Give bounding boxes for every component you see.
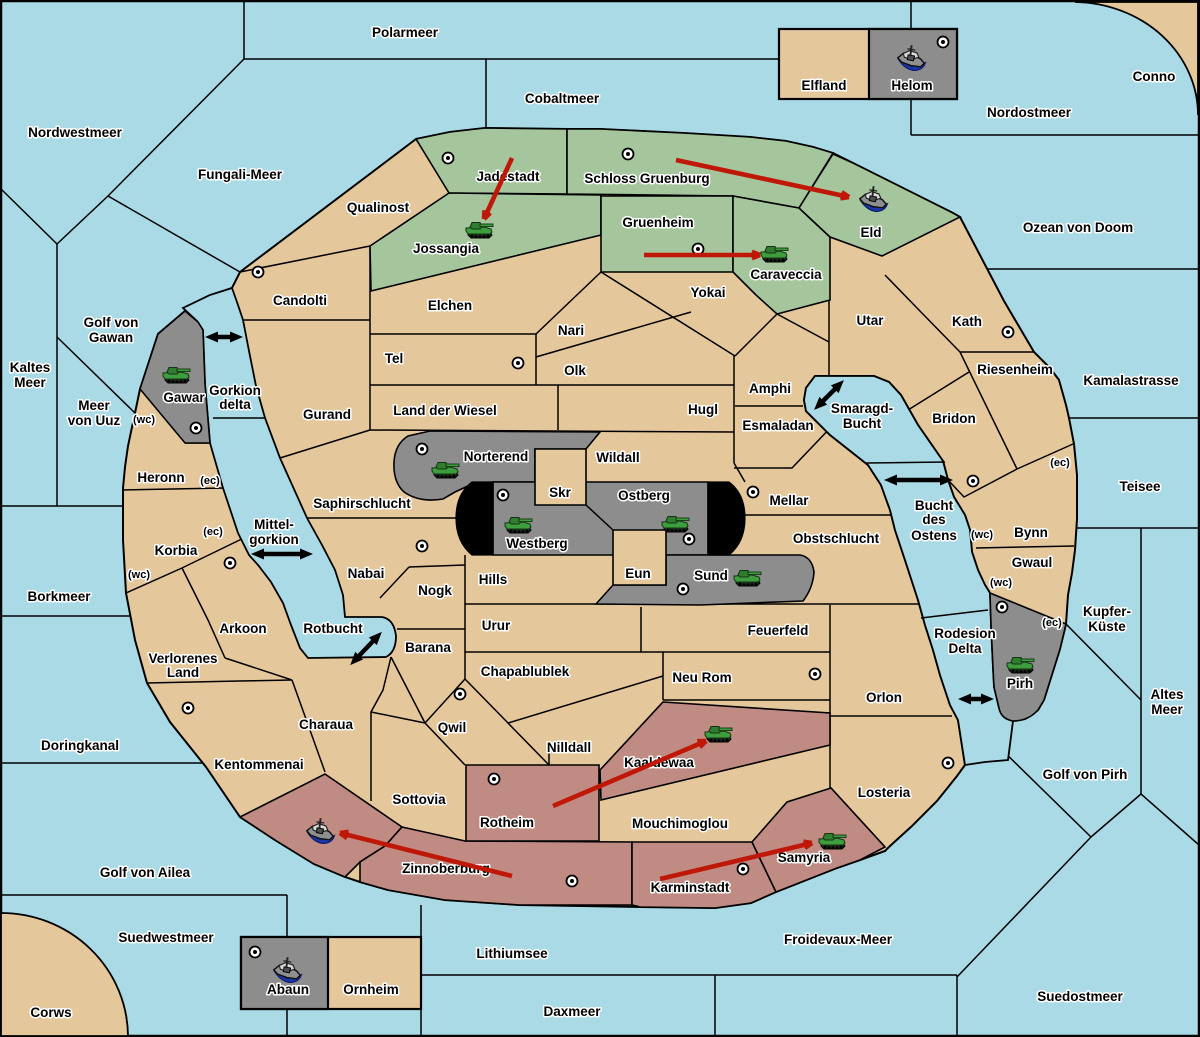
svg-text:Yokai: Yokai xyxy=(690,285,725,300)
svg-text:Froidevaux-Meer: Froidevaux-Meer xyxy=(784,932,893,947)
svg-text:Meer: Meer xyxy=(14,375,46,390)
svg-text:(wc): (wc) xyxy=(133,414,155,426)
svg-text:(ec): (ec) xyxy=(1042,617,1062,629)
svg-text:Verlorenes: Verlorenes xyxy=(148,651,217,666)
svg-text:Gwaul: Gwaul xyxy=(1012,555,1053,570)
svg-text:(wc): (wc) xyxy=(990,577,1012,589)
svg-text:Conno: Conno xyxy=(1133,69,1176,84)
svg-text:Esmaladan: Esmaladan xyxy=(742,418,813,433)
svg-text:Kamalastrasse: Kamalastrasse xyxy=(1083,373,1179,388)
svg-text:Wildall: Wildall xyxy=(596,450,639,465)
svg-text:Bucht: Bucht xyxy=(915,498,954,513)
svg-text:Olk: Olk xyxy=(564,363,586,378)
svg-text:Land: Land xyxy=(167,665,199,680)
svg-text:von Uuz: von Uuz xyxy=(68,413,121,428)
svg-text:Polarmeer: Polarmeer xyxy=(372,25,439,40)
svg-text:Qualinost: Qualinost xyxy=(347,200,410,215)
svg-text:Eun: Eun xyxy=(625,566,651,581)
svg-text:Gawar: Gawar xyxy=(163,390,205,405)
svg-text:des: des xyxy=(922,512,945,527)
svg-text:Gurand: Gurand xyxy=(303,407,351,422)
svg-text:Skr: Skr xyxy=(549,485,572,500)
svg-text:Suedostmeer: Suedostmeer xyxy=(1037,989,1123,1004)
svg-text:Saphirschlucht: Saphirschlucht xyxy=(313,496,411,511)
svg-text:Kentommenai: Kentommenai xyxy=(214,757,303,772)
svg-text:Hugl: Hugl xyxy=(688,402,718,417)
svg-text:Feuerfeld: Feuerfeld xyxy=(748,623,809,638)
svg-text:Lithiumsee: Lithiumsee xyxy=(476,946,548,961)
svg-text:Candolti: Candolti xyxy=(273,293,327,308)
svg-text:Sund: Sund xyxy=(694,568,728,583)
svg-text:Smaragd-: Smaragd- xyxy=(831,401,893,416)
svg-text:Pirh: Pirh xyxy=(1007,676,1033,691)
svg-text:Daxmeer: Daxmeer xyxy=(543,1004,601,1019)
svg-text:Corws: Corws xyxy=(30,1005,71,1020)
svg-text:Meer: Meer xyxy=(78,398,110,413)
svg-text:Ozean von Doom: Ozean von Doom xyxy=(1023,220,1133,235)
svg-text:Heronn: Heronn xyxy=(137,470,184,485)
svg-text:Barana: Barana xyxy=(405,640,451,655)
svg-text:Mellar: Mellar xyxy=(769,493,809,508)
svg-text:Bynn: Bynn xyxy=(1014,525,1048,540)
svg-text:Chapablublek: Chapablublek xyxy=(481,664,570,679)
svg-text:Arkoon: Arkoon xyxy=(219,621,266,636)
svg-text:Ostens: Ostens xyxy=(911,528,957,543)
svg-text:Altes: Altes xyxy=(1150,687,1183,702)
svg-text:Nari: Nari xyxy=(558,323,584,338)
svg-text:Nilldall: Nilldall xyxy=(547,740,591,755)
svg-text:Losteria: Losteria xyxy=(858,785,911,800)
svg-text:Ornheim: Ornheim xyxy=(343,982,399,997)
svg-text:Doringkanal: Doringkanal xyxy=(41,738,119,753)
svg-text:Ostberg: Ostberg xyxy=(618,488,670,503)
svg-text:Meer: Meer xyxy=(1151,702,1183,717)
svg-text:(ec): (ec) xyxy=(200,475,220,487)
svg-text:Elchen: Elchen xyxy=(428,298,472,313)
svg-text:Land der Wiesel: Land der Wiesel xyxy=(393,403,496,418)
svg-text:Westberg: Westberg xyxy=(506,536,567,551)
svg-text:delta: delta xyxy=(219,397,251,412)
svg-text:Utar: Utar xyxy=(856,313,884,328)
svg-text:Golf von: Golf von xyxy=(84,315,139,330)
svg-text:Küste: Küste xyxy=(1088,619,1126,634)
svg-text:Mouchimoglou: Mouchimoglou xyxy=(632,816,728,831)
svg-text:Tel: Tel xyxy=(385,351,404,366)
svg-text:(ec): (ec) xyxy=(203,526,223,538)
svg-text:Borkmeer: Borkmeer xyxy=(27,589,91,604)
svg-text:Bridon: Bridon xyxy=(932,411,976,426)
svg-text:Gorkion: Gorkion xyxy=(209,383,261,398)
svg-text:Golf von Ailea: Golf von Ailea xyxy=(100,865,191,880)
svg-text:Orlon: Orlon xyxy=(866,690,902,705)
svg-text:Sottovia: Sottovia xyxy=(392,792,446,807)
svg-text:Urur: Urur xyxy=(482,618,511,633)
svg-text:Gruenheim: Gruenheim xyxy=(622,215,693,230)
svg-text:Samyria: Samyria xyxy=(778,850,831,865)
svg-text:Golf von Pirh: Golf von Pirh xyxy=(1043,767,1128,782)
svg-text:Rotheim: Rotheim xyxy=(480,815,534,830)
svg-text:Gawan: Gawan xyxy=(89,330,133,345)
svg-text:Nordwestmeer: Nordwestmeer xyxy=(28,125,123,140)
svg-text:gorkion: gorkion xyxy=(249,532,299,547)
svg-text:Qwil: Qwil xyxy=(438,720,467,735)
svg-text:Nabai: Nabai xyxy=(348,566,385,581)
svg-text:Teisee: Teisee xyxy=(1119,479,1161,494)
svg-text:Charaua: Charaua xyxy=(299,717,354,732)
svg-text:Kaltes: Kaltes xyxy=(10,360,51,375)
svg-text:Amphi: Amphi xyxy=(749,381,791,396)
svg-text:Schloss Gruenburg: Schloss Gruenburg xyxy=(584,171,709,186)
svg-text:Riesenheim: Riesenheim xyxy=(977,362,1053,377)
svg-text:Abaun: Abaun xyxy=(267,982,309,997)
svg-text:Mittel-: Mittel- xyxy=(254,517,294,532)
svg-text:Bucht: Bucht xyxy=(843,416,882,431)
svg-text:Jossangia: Jossangia xyxy=(413,241,480,256)
svg-text:Suedwestmeer: Suedwestmeer xyxy=(118,930,214,945)
svg-text:Cobaltmeer: Cobaltmeer xyxy=(525,91,600,106)
svg-text:Eld: Eld xyxy=(860,225,881,240)
svg-text:Neu Rom: Neu Rom xyxy=(672,670,731,685)
svg-text:Kupfer-: Kupfer- xyxy=(1083,604,1131,619)
svg-text:Helom: Helom xyxy=(891,78,932,93)
svg-text:(wc): (wc) xyxy=(128,569,150,581)
svg-text:Delta: Delta xyxy=(948,641,982,656)
svg-text:Karminstadt: Karminstadt xyxy=(651,880,730,895)
svg-text:Rodesion: Rodesion xyxy=(934,626,996,641)
svg-text:(wc): (wc) xyxy=(971,529,993,541)
svg-text:Obstschlucht: Obstschlucht xyxy=(793,531,880,546)
svg-text:Korbia: Korbia xyxy=(155,543,198,558)
svg-text:Rotbucht: Rotbucht xyxy=(303,621,363,636)
svg-text:Norterend: Norterend xyxy=(464,449,529,464)
svg-text:Elfland: Elfland xyxy=(801,78,846,93)
svg-text:Fungali-Meer: Fungali-Meer xyxy=(198,167,283,182)
svg-text:Nogk: Nogk xyxy=(418,583,452,598)
svg-text:Caraveccia: Caraveccia xyxy=(750,267,822,282)
svg-text:Nordostmeer: Nordostmeer xyxy=(987,105,1072,120)
svg-text:Hills: Hills xyxy=(479,572,508,587)
svg-text:Kath: Kath xyxy=(952,314,982,329)
svg-text:(ec): (ec) xyxy=(1050,457,1070,469)
